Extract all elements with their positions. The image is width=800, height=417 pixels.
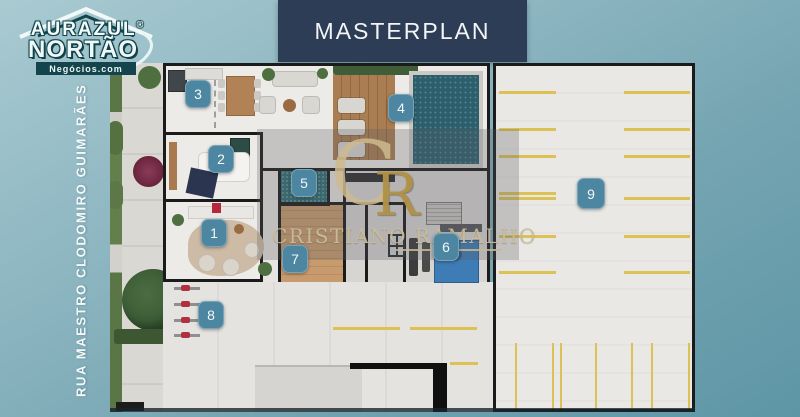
interior-wall [166,132,263,135]
green-bush-2 [110,181,123,209]
parking-line [624,235,690,238]
plant [172,214,184,226]
dining-table [226,76,255,116]
agency-logo: AURAZUL® NORTÃO Negócios.com [14,3,162,81]
maroon-bush [133,156,164,187]
side-table [234,224,244,234]
parking-line [560,343,562,409]
parking-line [624,91,690,94]
room-badge-4: 4 [388,94,414,122]
parking-line [688,343,690,409]
room-badge-1: 1 [201,219,227,247]
page-title: MASTERPLAN [315,18,491,45]
green-bush-1 [110,121,123,155]
deck-hedge [333,66,418,75]
door-swing [214,80,216,128]
parking-line [631,343,633,409]
plant [258,262,272,276]
parking-line [499,271,556,274]
armchair [259,96,276,114]
plan-bottom-edge [110,408,695,412]
room-badge-8: 8 [198,301,224,329]
room-badge-3: 3 [185,80,211,108]
parking-line [624,128,690,131]
plant [317,68,328,79]
sideboard [169,142,177,190]
armchair [302,96,320,114]
masterplan-banner: MASTERPLAN [278,0,527,62]
plant [262,68,275,81]
street-label: RUA MAESTRO CLODOMIRO GUIMARÃES [72,88,90,393]
room-badge-7: 7 [282,245,308,273]
yard-wall-vertical [433,363,447,412]
parking-line [499,91,556,94]
parking-line [450,362,478,365]
bike-rack [174,334,200,337]
room-badge-9: 9 [577,178,605,209]
registered-mark: ® [137,20,146,30]
dining-chair [254,79,261,88]
watermark-monogram-r: R [374,165,419,225]
parking-line [624,197,690,200]
parking-line [410,327,477,330]
lounge-counter [188,206,254,219]
logo-tagline: Negócios.com [49,64,123,74]
interior-wall [166,199,263,202]
parking-line [333,327,400,330]
room-badge-6: 6 [433,233,459,261]
room-badge-2: 2 [208,145,234,173]
sofa [272,71,318,87]
parking-line [595,343,597,409]
dining-chair [218,79,225,88]
watermark-name: CRISTIANO RAMALHO [272,224,506,248]
logo-tagline-band: Negócios.com [36,62,136,75]
garden-edge [110,63,122,412]
parking-line [552,343,554,409]
bike-rack [174,287,200,290]
pouf [222,258,240,276]
pool-lounger [338,98,365,113]
masterplan-screenshot: MASTERPLAN AURAZUL® NORTÃO Negócios.com … [0,0,800,417]
parking-line [624,155,690,158]
kitchen-counter [185,68,223,80]
parking-line [651,343,653,409]
parking-line [515,343,517,409]
pouf [198,254,216,272]
bike-rack [174,319,200,322]
dining-chair [218,91,225,100]
parking-line [624,271,690,274]
coffee-table [283,99,296,112]
logo-name-main: NORTÃO [18,36,148,64]
room-badge-5: 5 [291,169,317,197]
dining-chair [218,103,225,112]
coffee-machine [212,203,221,213]
ramp [255,365,362,412]
bike-rack [174,303,200,306]
